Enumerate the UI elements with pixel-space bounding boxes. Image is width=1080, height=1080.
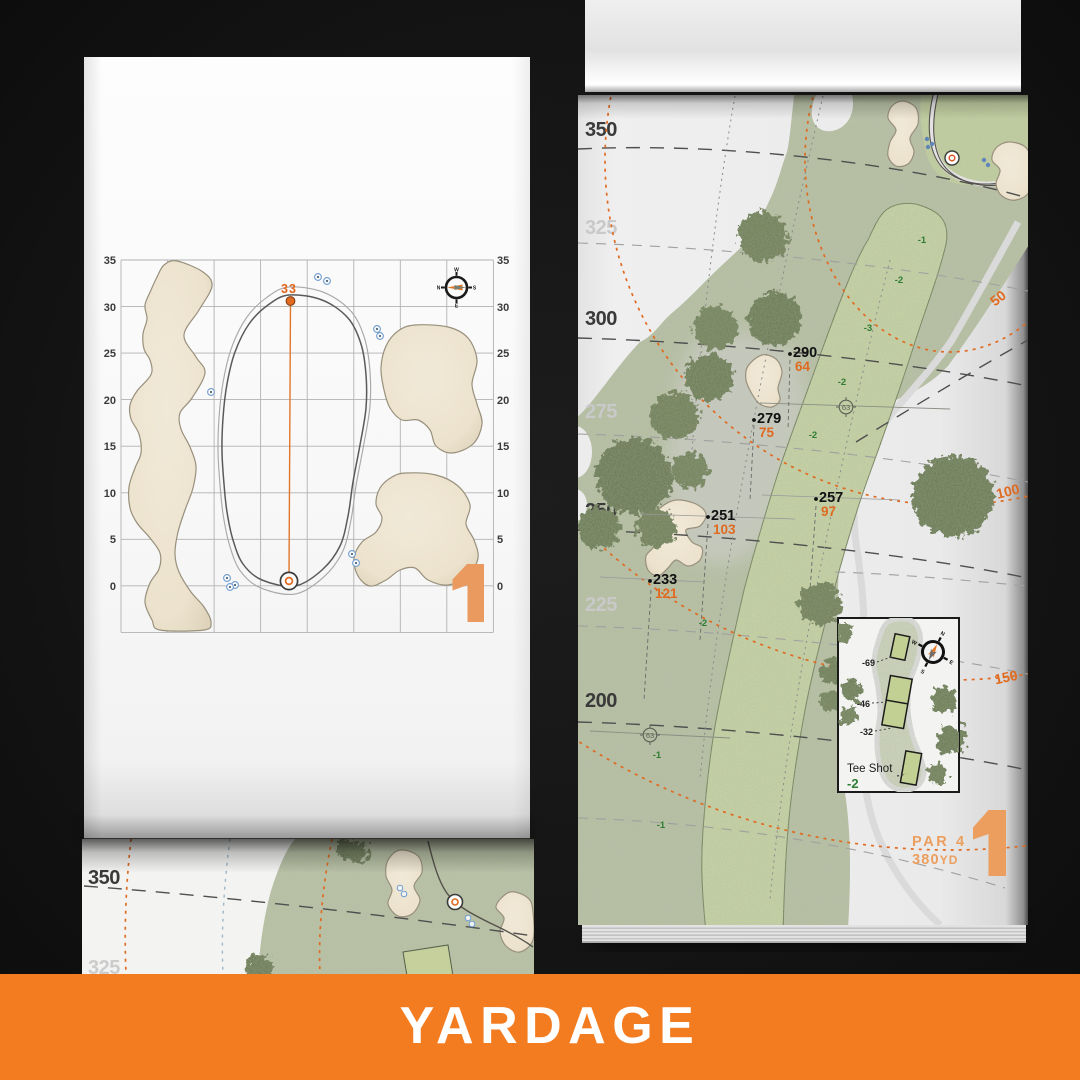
svg-text:-2: -2 xyxy=(838,377,846,388)
svg-text:0: 0 xyxy=(497,581,503,593)
svg-text:97: 97 xyxy=(821,504,836,519)
svg-text:15: 15 xyxy=(497,441,509,453)
svg-text:225: 225 xyxy=(585,594,617,616)
svg-text:30: 30 xyxy=(497,302,509,314)
svg-text:N: N xyxy=(437,285,441,291)
svg-text:-69: -69 xyxy=(862,658,875,668)
svg-text:300: 300 xyxy=(585,308,617,330)
svg-text:15: 15 xyxy=(104,441,116,453)
svg-text:380YD: 380YD xyxy=(912,852,958,868)
svg-text:25: 25 xyxy=(497,348,509,360)
svg-text:64: 64 xyxy=(795,359,811,374)
svg-text:350: 350 xyxy=(585,119,617,141)
svg-text:YARDAGE: YARDAGE xyxy=(400,997,701,1055)
svg-text:-2: -2 xyxy=(809,430,817,441)
svg-text:5: 5 xyxy=(110,534,116,546)
svg-text:-46: -46 xyxy=(857,699,870,709)
svg-text:20: 20 xyxy=(104,395,116,407)
svg-text:63: 63 xyxy=(646,731,654,740)
svg-text:-2: -2 xyxy=(699,618,707,629)
svg-text:20: 20 xyxy=(497,395,509,407)
svg-text:63: 63 xyxy=(842,403,850,412)
svg-text:-1: -1 xyxy=(918,235,927,246)
svg-text:0: 0 xyxy=(110,581,116,593)
svg-text:5: 5 xyxy=(497,534,503,546)
svg-text:121: 121 xyxy=(655,586,678,601)
svg-text:Tee Shot: Tee Shot xyxy=(847,763,893,775)
svg-text:-3: -3 xyxy=(864,323,872,334)
svg-text:10: 10 xyxy=(497,488,509,500)
svg-text:-32: -32 xyxy=(860,727,873,737)
svg-text:25: 25 xyxy=(104,348,116,360)
svg-text:30: 30 xyxy=(104,302,116,314)
svg-text:-2: -2 xyxy=(847,776,859,791)
svg-text:PAR 4: PAR 4 xyxy=(912,834,967,850)
svg-text:33: 33 xyxy=(281,282,297,296)
svg-text:75: 75 xyxy=(759,425,775,440)
svg-text:103: 103 xyxy=(713,522,736,537)
svg-text:10: 10 xyxy=(104,488,116,500)
svg-text:275: 275 xyxy=(585,401,617,423)
svg-text:325: 325 xyxy=(585,217,617,239)
svg-text:-2: -2 xyxy=(895,275,903,286)
svg-text:35: 35 xyxy=(104,255,116,267)
svg-text:-1: -1 xyxy=(657,820,666,831)
svg-text:-1: -1 xyxy=(653,750,662,761)
svg-text:35: 35 xyxy=(497,255,509,267)
svg-text:W: W xyxy=(454,268,459,274)
svg-text:200: 200 xyxy=(585,690,617,712)
